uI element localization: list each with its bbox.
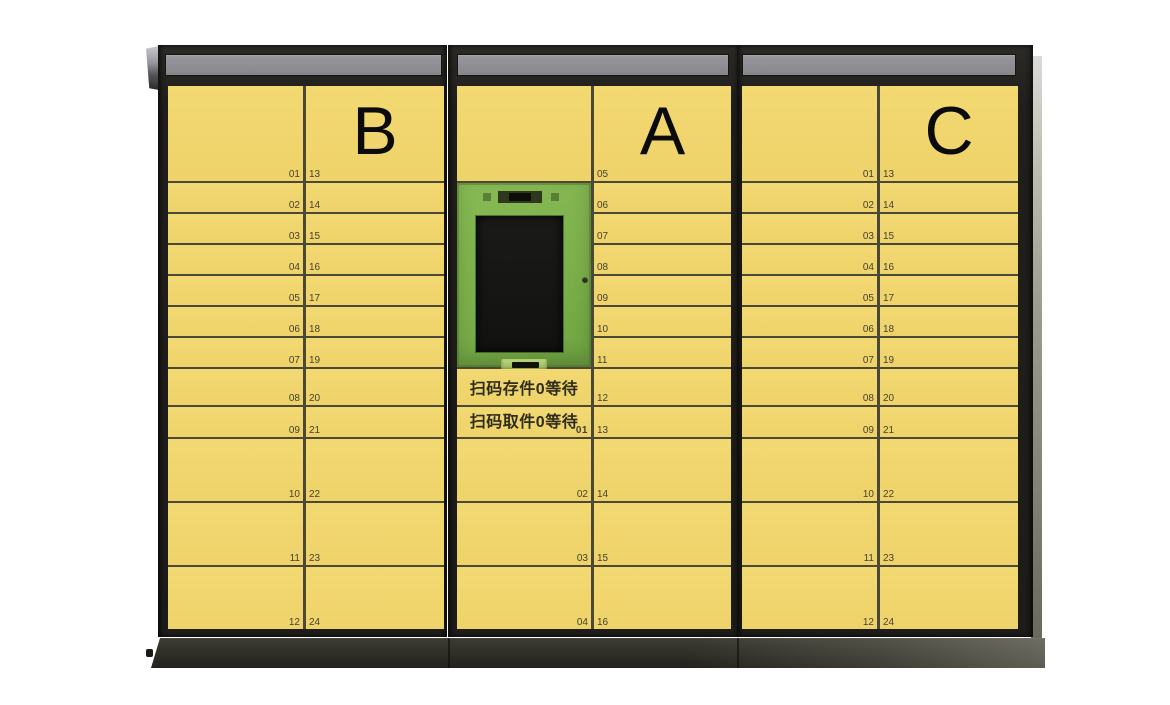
console-panel — [457, 183, 591, 367]
locker-door[interactable]: 21 — [306, 407, 444, 437]
locker-number: 20 — [883, 393, 894, 404]
locker-number: 23 — [309, 553, 320, 564]
locker-door[interactable]: 15 — [880, 214, 1018, 243]
locker-door[interactable]: 18 — [306, 307, 444, 336]
locker-number: 18 — [883, 324, 894, 335]
locker-door[interactable]: 19 — [306, 338, 444, 367]
locker-number: 04 — [289, 262, 300, 273]
locker-door[interactable]: 15 — [306, 214, 444, 243]
locker-door[interactable]: 12 — [168, 567, 303, 629]
locker-door[interactable]: 10 — [742, 439, 877, 501]
locker-door[interactable]: 03 — [168, 214, 303, 243]
locker-number: 10 — [863, 489, 874, 500]
locker-number: 16 — [597, 617, 608, 628]
locker-door[interactable]: A05 — [594, 86, 731, 181]
locker-number: 08 — [863, 393, 874, 404]
locker-number: 09 — [289, 425, 300, 436]
locker-number: 17 — [883, 293, 894, 304]
cabinet-a-header — [448, 45, 740, 86]
locker-door[interactable]: 20 — [880, 369, 1018, 405]
parcel-locker-scene: 01 B13 02 14 03 15 04 16 05 17 06 18 07 … — [0, 0, 1170, 705]
locker-door[interactable]: 17 — [306, 276, 444, 305]
plinth-highlight — [687, 638, 1045, 668]
locker-door[interactable]: 19 — [880, 338, 1018, 367]
locker-number: 09 — [863, 425, 874, 436]
pickup-status-plate[interactable]: 扫码取件0等待01 — [457, 407, 591, 437]
locker-number: 13 — [309, 169, 320, 180]
cabinet-b-header — [158, 45, 447, 86]
locker-door[interactable]: 07 — [168, 338, 303, 367]
locker-number: 05 — [597, 169, 608, 180]
locker-number: 13 — [597, 425, 608, 436]
locker-number: 22 — [309, 489, 320, 500]
locker-door[interactable]: 08 — [742, 369, 877, 405]
locker-number: 10 — [597, 324, 608, 335]
locker-number: 01 — [576, 425, 588, 436]
locker-door[interactable]: 02 — [168, 183, 303, 212]
locker-door[interactable]: 13 — [594, 407, 731, 437]
locker-door[interactable]: B13 — [306, 86, 444, 181]
signboard — [458, 55, 728, 75]
locker-number: 03 — [289, 231, 300, 242]
locker-door[interactable]: 01 — [742, 86, 877, 181]
locker-door[interactable]: 22 — [880, 439, 1018, 501]
cabinet-letter: B — [352, 97, 397, 165]
locker-number: 14 — [597, 489, 608, 500]
locker-number: 01 — [289, 169, 300, 180]
locker-number: 16 — [883, 262, 894, 273]
touch-screen[interactable] — [476, 216, 563, 352]
cabinet-b: 01 B13 02 14 03 15 04 16 05 17 06 18 07 … — [158, 45, 447, 637]
scanner-camera-icon — [498, 191, 542, 203]
base-foot — [146, 649, 153, 657]
locker-door[interactable]: 01 — [168, 86, 303, 181]
deposit-status-plate[interactable]: 扫码存件0等待 — [457, 369, 591, 405]
locker-number: 15 — [597, 553, 608, 564]
locker-door[interactable]: 10 — [594, 307, 731, 336]
locker-door[interactable]: 23 — [880, 503, 1018, 565]
locker-number: 19 — [883, 355, 894, 366]
locker-number: 06 — [863, 324, 874, 335]
locker-door[interactable]: 08 — [594, 245, 731, 274]
locker-number: 15 — [883, 231, 894, 242]
scanner-window-icon — [512, 362, 539, 368]
locker-door[interactable]: 20 — [306, 369, 444, 405]
locker-number: 07 — [863, 355, 874, 366]
locker-number: 23 — [883, 553, 894, 564]
locker-door[interactable]: 21 — [880, 407, 1018, 437]
plinth-seam — [448, 638, 450, 668]
locker-number: 15 — [309, 231, 320, 242]
locker-number: 02 — [289, 200, 300, 211]
locker-number: 21 — [883, 425, 894, 436]
locker-door[interactable]: 09 — [168, 407, 303, 437]
locker-number: 12 — [597, 393, 608, 404]
locker-door[interactable]: 14 — [594, 439, 731, 501]
cabinet-a-doors: A05 扫码存件0等待 06 07 08 09 10 11 12 扫码 — [457, 86, 731, 629]
locker-door[interactable]: 12 — [742, 567, 877, 629]
base-plinth — [151, 638, 1045, 668]
locker-number: 11 — [290, 553, 300, 564]
locker-number: 10 — [289, 489, 300, 500]
locker-door[interactable]: 04 — [742, 245, 877, 274]
locker-number: 08 — [289, 393, 300, 404]
locker-number: 09 — [597, 293, 608, 304]
side-button[interactable] — [582, 277, 588, 283]
locker-number: 12 — [289, 617, 300, 628]
locker-door[interactable]: 05 — [168, 276, 303, 305]
locker-door[interactable]: 11 — [168, 503, 303, 565]
cabinet-c: 01 C13 02 14 03 15 04 16 05 17 06 18 07 … — [737, 45, 1033, 637]
cabinet-c-doors: 01 C13 02 14 03 15 04 16 05 17 06 18 07 … — [742, 86, 1018, 629]
locker-door[interactable]: 22 — [306, 439, 444, 501]
locker-number: 17 — [309, 293, 320, 304]
locker-number: 06 — [289, 324, 300, 335]
pickup-status-text: 扫码取件0等待 — [470, 408, 578, 432]
locker-door[interactable]: 07 — [742, 338, 877, 367]
locker-number: 11 — [864, 553, 874, 564]
locker-number: 07 — [597, 231, 608, 242]
locker-number: 02 — [863, 200, 874, 211]
locker-door[interactable]: 08 — [168, 369, 303, 405]
locker-number: 16 — [309, 262, 320, 273]
cabinet-b-doors: 01 B13 02 14 03 15 04 16 05 17 06 18 07 … — [168, 86, 444, 629]
locker-door[interactable]: 03 — [457, 503, 591, 565]
locker-number: 04 — [577, 617, 588, 628]
locker-number: 03 — [577, 553, 588, 564]
plinth-seam — [737, 638, 739, 668]
locker-door[interactable]: 07 — [594, 214, 731, 243]
locker-door[interactable]: 03 — [742, 214, 877, 243]
locker-number: 14 — [309, 200, 320, 211]
locker-door[interactable]: 14 — [306, 183, 444, 212]
locker-number: 05 — [289, 293, 300, 304]
locker-door[interactable] — [457, 86, 591, 181]
locker-number: 20 — [309, 393, 320, 404]
cabinet-a: A05 扫码存件0等待 06 07 08 09 10 11 12 扫码 — [448, 45, 740, 637]
locker-door[interactable]: 24 — [880, 567, 1018, 629]
locker-door[interactable]: 16 — [306, 245, 444, 274]
deposit-status-text: 扫码存件0等待 — [470, 375, 578, 399]
locker-number: 22 — [883, 489, 894, 500]
locker-door[interactable]: 06 — [168, 307, 303, 336]
locker-number: 06 — [597, 200, 608, 211]
cabinet-letter: C — [924, 97, 973, 165]
locker-door[interactable]: 04 — [457, 567, 591, 629]
locker-number: 07 — [289, 355, 300, 366]
locker-number: 04 — [863, 262, 874, 273]
signboard — [166, 55, 441, 75]
signboard — [743, 55, 1015, 75]
cabinet-letter: A — [640, 97, 685, 165]
locker-door[interactable]: 14 — [880, 183, 1018, 212]
locker-door[interactable]: 11 — [594, 338, 731, 367]
locker-door[interactable]: 16 — [594, 567, 731, 629]
locker-door[interactable]: 11 — [742, 503, 877, 565]
indicator-light-icon — [483, 193, 491, 201]
locker-door[interactable]: 09 — [594, 276, 731, 305]
locker-number: 02 — [577, 489, 588, 500]
locker-number: 01 — [863, 169, 874, 180]
camera-lens-icon — [509, 193, 531, 201]
locker-number: 24 — [309, 617, 320, 628]
locker-number: 08 — [597, 262, 608, 273]
locker-number: 03 — [863, 231, 874, 242]
locker-door[interactable]: 09 — [742, 407, 877, 437]
locker-number: 18 — [309, 324, 320, 335]
locker-door[interactable]: 10 — [168, 439, 303, 501]
locker-number: 19 — [309, 355, 320, 366]
locker-door[interactable]: 06 — [742, 307, 877, 336]
locker-door[interactable]: 12 — [594, 369, 731, 405]
locker-door[interactable]: 23 — [306, 503, 444, 565]
cabinet-c-header — [737, 45, 1033, 86]
locker-door[interactable]: 05 — [742, 276, 877, 305]
locker-door[interactable]: 04 — [168, 245, 303, 274]
locker-number: 11 — [597, 355, 607, 366]
locker-number: 05 — [863, 293, 874, 304]
locker-number: 24 — [883, 617, 894, 628]
locker-number: 13 — [883, 169, 894, 180]
locker-number: 12 — [863, 617, 874, 628]
locker-door[interactable]: C13 — [880, 86, 1018, 181]
locker-door[interactable]: 16 — [880, 245, 1018, 274]
locker-door[interactable]: 24 — [306, 567, 444, 629]
locker-door[interactable]: 18 — [880, 307, 1018, 336]
locker-door[interactable]: 06 — [594, 183, 731, 212]
locker-door[interactable]: 15 — [594, 503, 731, 565]
locker-door[interactable]: 02 — [457, 439, 591, 501]
locker-door[interactable]: 02 — [742, 183, 877, 212]
locker-number: 21 — [309, 425, 320, 436]
indicator-light-icon — [551, 193, 559, 201]
locker-number: 14 — [883, 200, 894, 211]
locker-door[interactable]: 17 — [880, 276, 1018, 305]
